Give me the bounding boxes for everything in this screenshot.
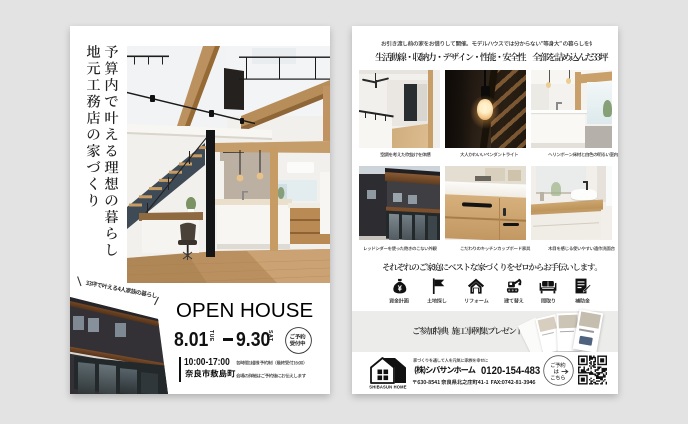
svg-text:SHIBASUN HOME: SHIBASUN HOME: [369, 384, 406, 389]
